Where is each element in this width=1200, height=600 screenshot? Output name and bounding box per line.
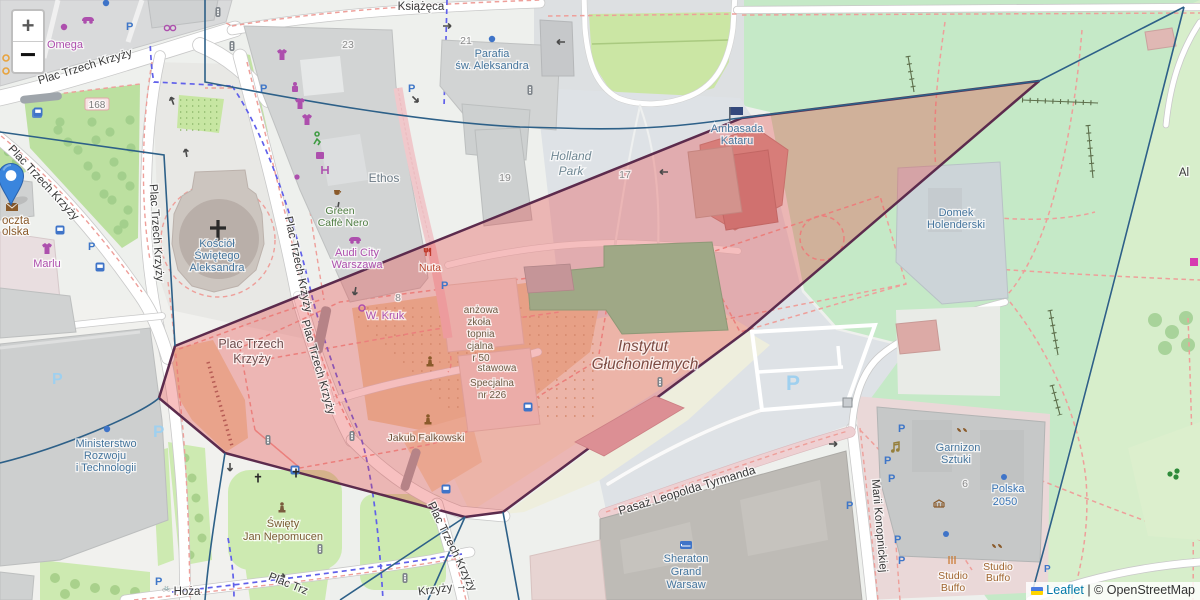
svg-text:19: 19 [499, 172, 511, 184]
svg-text:Rozwoju: Rozwoju [84, 450, 126, 462]
svg-text:topnia: topnia [467, 329, 495, 340]
svg-text:Specjalna: Specjalna [470, 378, 514, 389]
svg-text:Instytut: Instytut [618, 338, 669, 355]
svg-text:Sztuki: Sztuki [941, 454, 971, 466]
svg-text:P: P [898, 423, 905, 435]
svg-text:P: P [786, 372, 800, 395]
svg-text:P: P [52, 371, 63, 388]
svg-text:P: P [408, 83, 415, 95]
svg-text:Al: Al [1179, 167, 1189, 179]
svg-text:Holenderski: Holenderski [927, 219, 985, 231]
svg-text:P: P [846, 500, 853, 512]
svg-text:Buffo: Buffo [986, 572, 1010, 584]
svg-text:Święty: Święty [267, 517, 300, 530]
svg-text:P: P [153, 422, 164, 441]
svg-text:P: P [898, 555, 905, 567]
svg-text:Polska: Polska [991, 483, 1025, 495]
svg-text:W. Kruk: W. Kruk [366, 310, 405, 322]
svg-text:Parafia: Parafia [475, 48, 511, 60]
svg-text:Warszawa: Warszawa [332, 259, 384, 271]
svg-text:Garnizon: Garnizon [936, 442, 981, 454]
svg-text:P: P [884, 455, 891, 467]
svg-text:Ethos: Ethos [369, 171, 400, 185]
svg-text:nr 226: nr 226 [478, 390, 507, 401]
svg-text:P: P [888, 473, 895, 485]
svg-text:P: P [441, 280, 448, 292]
svg-text:stawowa: stawowa [478, 363, 517, 374]
svg-text:Nuta: Nuta [419, 262, 441, 274]
svg-text:Głuchoniemych: Głuchoniemych [592, 356, 699, 373]
svg-text:Warsaw: Warsaw [666, 579, 705, 591]
svg-text:Audi City: Audi City [335, 247, 380, 259]
svg-text:🚲: 🚲 [162, 585, 171, 592]
svg-text:Domek: Domek [939, 207, 974, 219]
svg-text:Krzyży: Krzyży [233, 352, 271, 366]
svg-text:zkoła: zkoła [467, 317, 491, 328]
svg-text:św. Aleksandra: św. Aleksandra [455, 60, 529, 72]
svg-text:P: P [1044, 564, 1051, 575]
svg-text:23: 23 [342, 39, 354, 51]
svg-text:Kościół: Kościół [199, 238, 235, 250]
svg-text:Ministerstwo: Ministerstwo [75, 438, 136, 450]
svg-text:Studio: Studio [938, 570, 968, 582]
svg-text:P: P [88, 241, 95, 253]
svg-text:Kataru: Kataru [721, 135, 753, 147]
svg-text:Omega: Omega [47, 39, 84, 51]
svg-text:Buffo: Buffo [941, 582, 965, 594]
svg-text:Aleksandra: Aleksandra [189, 262, 245, 274]
svg-text:Holland: Holland [551, 149, 592, 163]
svg-text:Hoża: Hoża [174, 586, 201, 598]
svg-text:olska: olska [2, 226, 29, 238]
svg-text:17: 17 [619, 169, 631, 181]
svg-text:21: 21 [460, 35, 472, 47]
svg-text:i Technologii: i Technologii [76, 462, 136, 474]
svg-text:6: 6 [962, 478, 968, 490]
svg-text:Książęca: Książęca [398, 1, 445, 13]
svg-text:2050: 2050 [993, 496, 1017, 508]
svg-text:Park: Park [559, 164, 585, 178]
svg-text:Jan Nepomucen: Jan Nepomucen [243, 531, 323, 543]
svg-text:Jakub Falkowski: Jakub Falkowski [387, 432, 464, 444]
svg-text:Green: Green [325, 205, 354, 217]
svg-text:Sheraton: Sheraton [664, 553, 709, 565]
svg-text:P: P [260, 83, 267, 95]
svg-text:P: P [126, 21, 133, 33]
svg-text:P: P [894, 534, 901, 546]
svg-text:Caffè Nero: Caffè Nero [318, 217, 369, 229]
svg-text:168: 168 [89, 100, 106, 111]
svg-text:anżowa: anżowa [464, 305, 499, 316]
svg-text:Marlu: Marlu [33, 258, 61, 270]
svg-text:Ambasada: Ambasada [711, 123, 764, 135]
svg-text:Grand: Grand [671, 566, 702, 578]
svg-text:Świętego: Świętego [194, 249, 239, 262]
svg-text:cjalna: cjalna [467, 341, 494, 352]
svg-text:8: 8 [395, 292, 401, 304]
svg-text:Plac Trzech: Plac Trzech [218, 337, 283, 351]
